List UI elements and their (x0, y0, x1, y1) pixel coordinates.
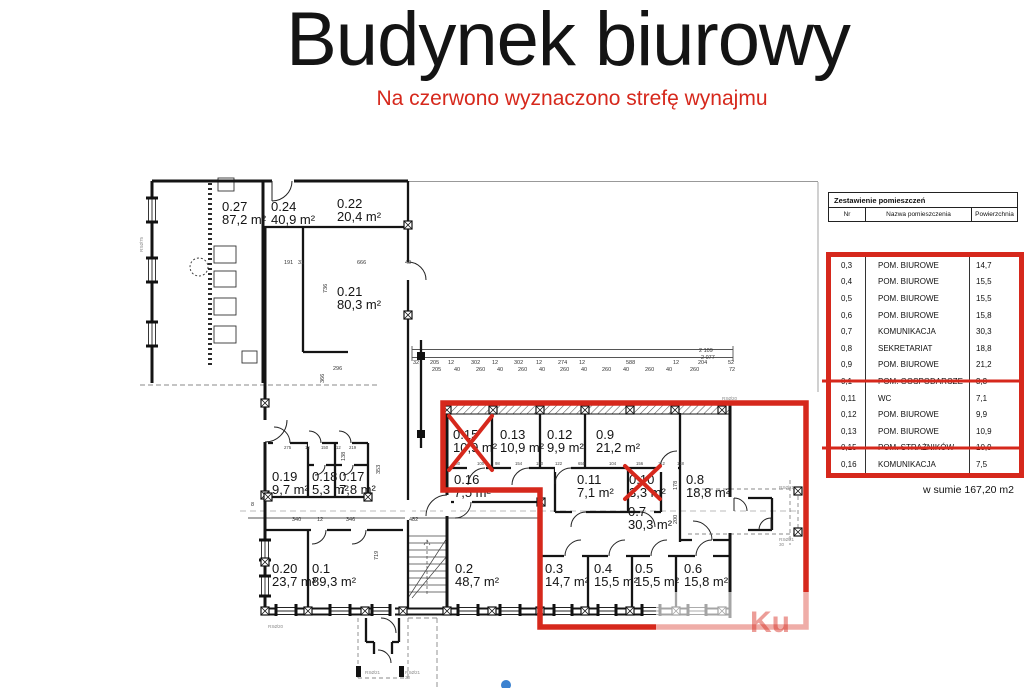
room-label: 0.177,8 m² (339, 469, 377, 497)
legend-row-nr: 0,1 (831, 377, 865, 386)
legend-row-area: 15,8 (969, 307, 1015, 324)
column-marker (404, 221, 412, 229)
dimension: 98 (495, 461, 500, 466)
dimension: 52 (728, 360, 734, 366)
window (499, 604, 522, 616)
dimension: 12 (448, 360, 454, 366)
dimension: 12 (579, 360, 585, 366)
column-marker (443, 607, 451, 615)
col-area: Powierzchnia (971, 208, 1017, 221)
column-marker (361, 607, 369, 615)
dimension: 346 (346, 517, 355, 523)
legend-row-nr: 0,3 (831, 261, 865, 270)
window (146, 197, 158, 224)
legend-row-nr: 0,12 (831, 410, 865, 419)
legend-row: 0,5POM. BIUROWE15,5 (831, 290, 1019, 307)
column-marker (626, 607, 634, 615)
legend-row-area: 21,2 (969, 357, 1015, 374)
column-marker (489, 406, 497, 414)
legend-row-name: WC (865, 390, 969, 407)
annotation: RSØ21 (779, 485, 795, 490)
legend-row-name: POM. GOSPODARCZE (865, 373, 969, 390)
column-marker (794, 487, 802, 495)
dimension: 31 (298, 260, 304, 266)
room-label: 0.314,7 m² (545, 561, 590, 589)
dimension: 191 (284, 260, 293, 266)
legend-row-name: POM. BIUROWE (865, 307, 969, 324)
window (457, 604, 480, 616)
room-label: 0.615,8 m² (684, 561, 729, 589)
dimension: 40 (539, 367, 545, 373)
legend-row: 0,6POM. BIUROWE15,8 (831, 307, 1019, 324)
room-label: 0.2023,7 m² (272, 561, 317, 589)
window (553, 604, 574, 616)
room-label: 0.2787,2 m² (222, 199, 267, 227)
legend-row: 0,3POM. BIUROWE14,7 (831, 257, 1019, 274)
column-marker (536, 406, 544, 414)
legend-row-area: 30,3 (969, 323, 1015, 340)
room-label: 0.730,3 m² (628, 504, 673, 532)
window (146, 321, 158, 348)
legend-row-nr: 0,8 (831, 344, 865, 353)
dimension: 40 (666, 367, 672, 373)
legend-row-nr: 0,9 (831, 360, 865, 369)
dimension: 275 (284, 445, 292, 450)
room-label: 0.1310,9 m² (500, 427, 545, 455)
legend-row-nr: 0,7 (831, 327, 865, 336)
legend-body: 0,3POM. BIUROWE14,70,4POM. BIUROWE15,50,… (826, 252, 1024, 478)
dimension: 118 (677, 461, 684, 466)
dimension: 340 (292, 517, 301, 523)
dimension: 12 (336, 445, 341, 450)
column-marker (626, 406, 634, 414)
legend-row-name: KOMUNIKACJA (865, 456, 969, 473)
legend-row-nr: 0,4 (831, 277, 865, 286)
legend-total: w sumie 167,20 m2 (826, 484, 1014, 496)
legend-row: 0,13POM. BIUROWE10,9 (831, 423, 1019, 440)
legend-row-area: 3,3 (969, 373, 1015, 390)
dimension: 12 (673, 360, 679, 366)
legend-row-nr: 0,11 (831, 394, 865, 403)
legend-row-area: 15,5 (969, 290, 1015, 307)
dimension: 366 (320, 374, 326, 383)
dimension: 138 (341, 452, 347, 461)
dimension: 12 (536, 360, 542, 366)
column-marker (399, 607, 407, 615)
annotation: 30 (405, 675, 411, 680)
room-label: 0.818,8 m² (686, 472, 731, 500)
dimension: 156 (636, 461, 644, 466)
dimension: 2 109 (699, 348, 713, 354)
dimension: 12 (492, 360, 498, 366)
window (371, 604, 392, 616)
legend-row: 0,9POM. BIUROWE21,2 (831, 357, 1019, 374)
dimension: 736 (323, 284, 329, 293)
dimension: 296 (333, 366, 342, 372)
floor-plan-page: { "page": { "title": "Budynek biurowy", … (0, 0, 1024, 688)
door-arcs (265, 181, 771, 663)
column-marker (404, 311, 412, 319)
dimension: 150 (321, 445, 329, 450)
dimension: 650 (578, 461, 586, 466)
dimension: 302 (514, 360, 523, 366)
legend-row: 0,8SEKRETARIAT18,8 (831, 340, 1019, 357)
dimension: 200 (673, 515, 679, 524)
dimension: 40 (497, 367, 503, 373)
window (275, 604, 298, 616)
legend-row: 0,4POM. BIUROWE15,5 (831, 274, 1019, 291)
dimension: 40 (454, 367, 460, 373)
room-label: 0.199,7 m² (272, 469, 310, 497)
annotation: 30 (779, 542, 785, 547)
column-marker (671, 406, 679, 414)
dimension: 482 (409, 517, 418, 523)
window (146, 257, 158, 284)
dimension: 122 (555, 461, 563, 466)
dimension: 260 (690, 367, 699, 373)
legend-row-name: POM. BIUROWE (865, 423, 969, 440)
legend-row-name: SEKRETARIAT (865, 340, 969, 357)
annotation: RSØ75 (139, 236, 144, 252)
dimension: 205 (430, 360, 439, 366)
dimension: 178 (673, 481, 679, 490)
room-label: 0.921,2 m² (596, 427, 641, 455)
legend-row: 0,11WC7,1 (831, 390, 1019, 407)
room-label: 0.189,3 m² (312, 561, 357, 589)
dimension: 260 (476, 367, 485, 373)
dimension: 40 (623, 367, 629, 373)
column-marker (264, 493, 272, 501)
room-label: 0.2180,3 m² (337, 284, 382, 312)
legend-row-nr: 0,6 (831, 311, 865, 320)
legend-row-area: 15,5 (969, 274, 1015, 291)
column-marker (261, 558, 269, 566)
annotation: RSØ20 (268, 624, 284, 629)
column-marker (261, 399, 269, 407)
dimension: 72 (729, 367, 735, 373)
legend-row-name: POM. BIUROWE (865, 274, 969, 291)
window (597, 604, 618, 616)
svg-text:Ku: Ku (750, 606, 790, 639)
legend-row-name: POM. BIUROWE (865, 290, 969, 307)
legend-title: Zestawienie pomieszczeń (829, 193, 1017, 208)
room-label: 0.248,7 m² (455, 561, 500, 589)
dimension: 40 (581, 367, 587, 373)
col-name: Nazwa pomieszczenia (865, 208, 971, 221)
window (329, 604, 352, 616)
dimension: 12 (305, 445, 310, 450)
dimension: 180 (536, 461, 544, 466)
legend-row-nr: 0,13 (831, 427, 865, 436)
column-circle (190, 258, 208, 276)
dimension: 260 (518, 367, 527, 373)
dimension: 154 (515, 461, 523, 466)
window (259, 575, 271, 598)
dimension: 719 (374, 551, 380, 560)
room-label: 0.117,1 m² (577, 472, 615, 500)
dimension: 32 (413, 360, 419, 366)
legend-row-area: 14,7 (969, 257, 1015, 274)
dimension: 302 (471, 360, 480, 366)
legend-row-name: KOMUNIKACJA (865, 323, 969, 340)
legend-row-area: 7,5 (969, 456, 1015, 473)
column-marker (261, 607, 269, 615)
legend-row: 0,12POM. BIUROWE9,9 (831, 406, 1019, 423)
legend-row-name: POM. BIUROWE (865, 257, 969, 274)
column-marker (794, 528, 802, 536)
dimension: 274 (558, 360, 567, 366)
room-legend-table: Zestawienie pomieszczeń Nr Nazwa pomiesz… (828, 192, 1018, 222)
staircase (408, 536, 447, 598)
legend-row-area: 18,8 (969, 340, 1015, 357)
legend-row: 0,7KOMUNIKACJA30,3 (831, 323, 1019, 340)
legend-row-nr: 0,5 (831, 294, 865, 303)
room-label: 0.2440,9 m² (271, 199, 316, 227)
dimension: 219 (349, 445, 357, 450)
legend-row-name: POM. BIUROWE (865, 357, 969, 374)
door-openings (262, 178, 734, 617)
legend-row-area: 10,9 (969, 440, 1015, 457)
legend-header: Zestawienie pomieszczeń Nr Nazwa pomiesz… (828, 192, 1018, 222)
dimension: 260 (602, 367, 611, 373)
dimension: 104 (609, 461, 617, 466)
legend-row-nr: 0,16 (831, 460, 865, 469)
dimension: 8 (251, 502, 254, 508)
column-marker (718, 406, 726, 414)
annotation: RSØ21 (365, 670, 381, 675)
dimension: 260 (645, 367, 654, 373)
legend-row-name: POM. STRAŻNIKÓW (865, 440, 969, 457)
legend-row-area: 9,9 (969, 406, 1015, 423)
dimension: 260 (560, 367, 569, 373)
room-label: 0.2220,4 m² (337, 196, 382, 224)
legend-row-name: POM. BIUROWE (865, 406, 969, 423)
legend-row-area: 10,9 (969, 423, 1015, 440)
column-marker (581, 607, 589, 615)
dimension: 12 (317, 517, 323, 523)
room-label: 0.515,5 m² (635, 561, 680, 589)
outer-walls (152, 181, 730, 618)
map-pin-dot (501, 680, 511, 688)
legend-row-area: 7,1 (969, 390, 1015, 407)
watermark: Ku (656, 592, 818, 644)
legend-row: 0,16KOMUNIKACJA7,5 (831, 456, 1019, 473)
room-label: 0.167,5 m² (454, 472, 492, 500)
legend-columns: Nr Nazwa pomieszczenia Powierzchnia (829, 208, 1017, 221)
legend-row: 0,1POM. GOSPODARCZE3,3 (831, 373, 1019, 390)
legend-row: 0,15POM. STRAŻNIKÓW10,9 (831, 440, 1019, 457)
column-marker (488, 607, 496, 615)
dimension: 205 (432, 367, 441, 373)
column-marker (581, 406, 589, 414)
dimension: 666 (357, 260, 366, 266)
dimension: 40 (405, 260, 411, 266)
column-marker (304, 607, 312, 615)
dimension: 588 (626, 360, 635, 366)
room-label: 0.129,9 m² (547, 427, 585, 455)
dimension: 353 (376, 465, 382, 474)
col-nr: Nr (829, 208, 865, 221)
dimension: 204 (698, 360, 707, 366)
legend-row-nr: 0,15 (831, 443, 865, 452)
